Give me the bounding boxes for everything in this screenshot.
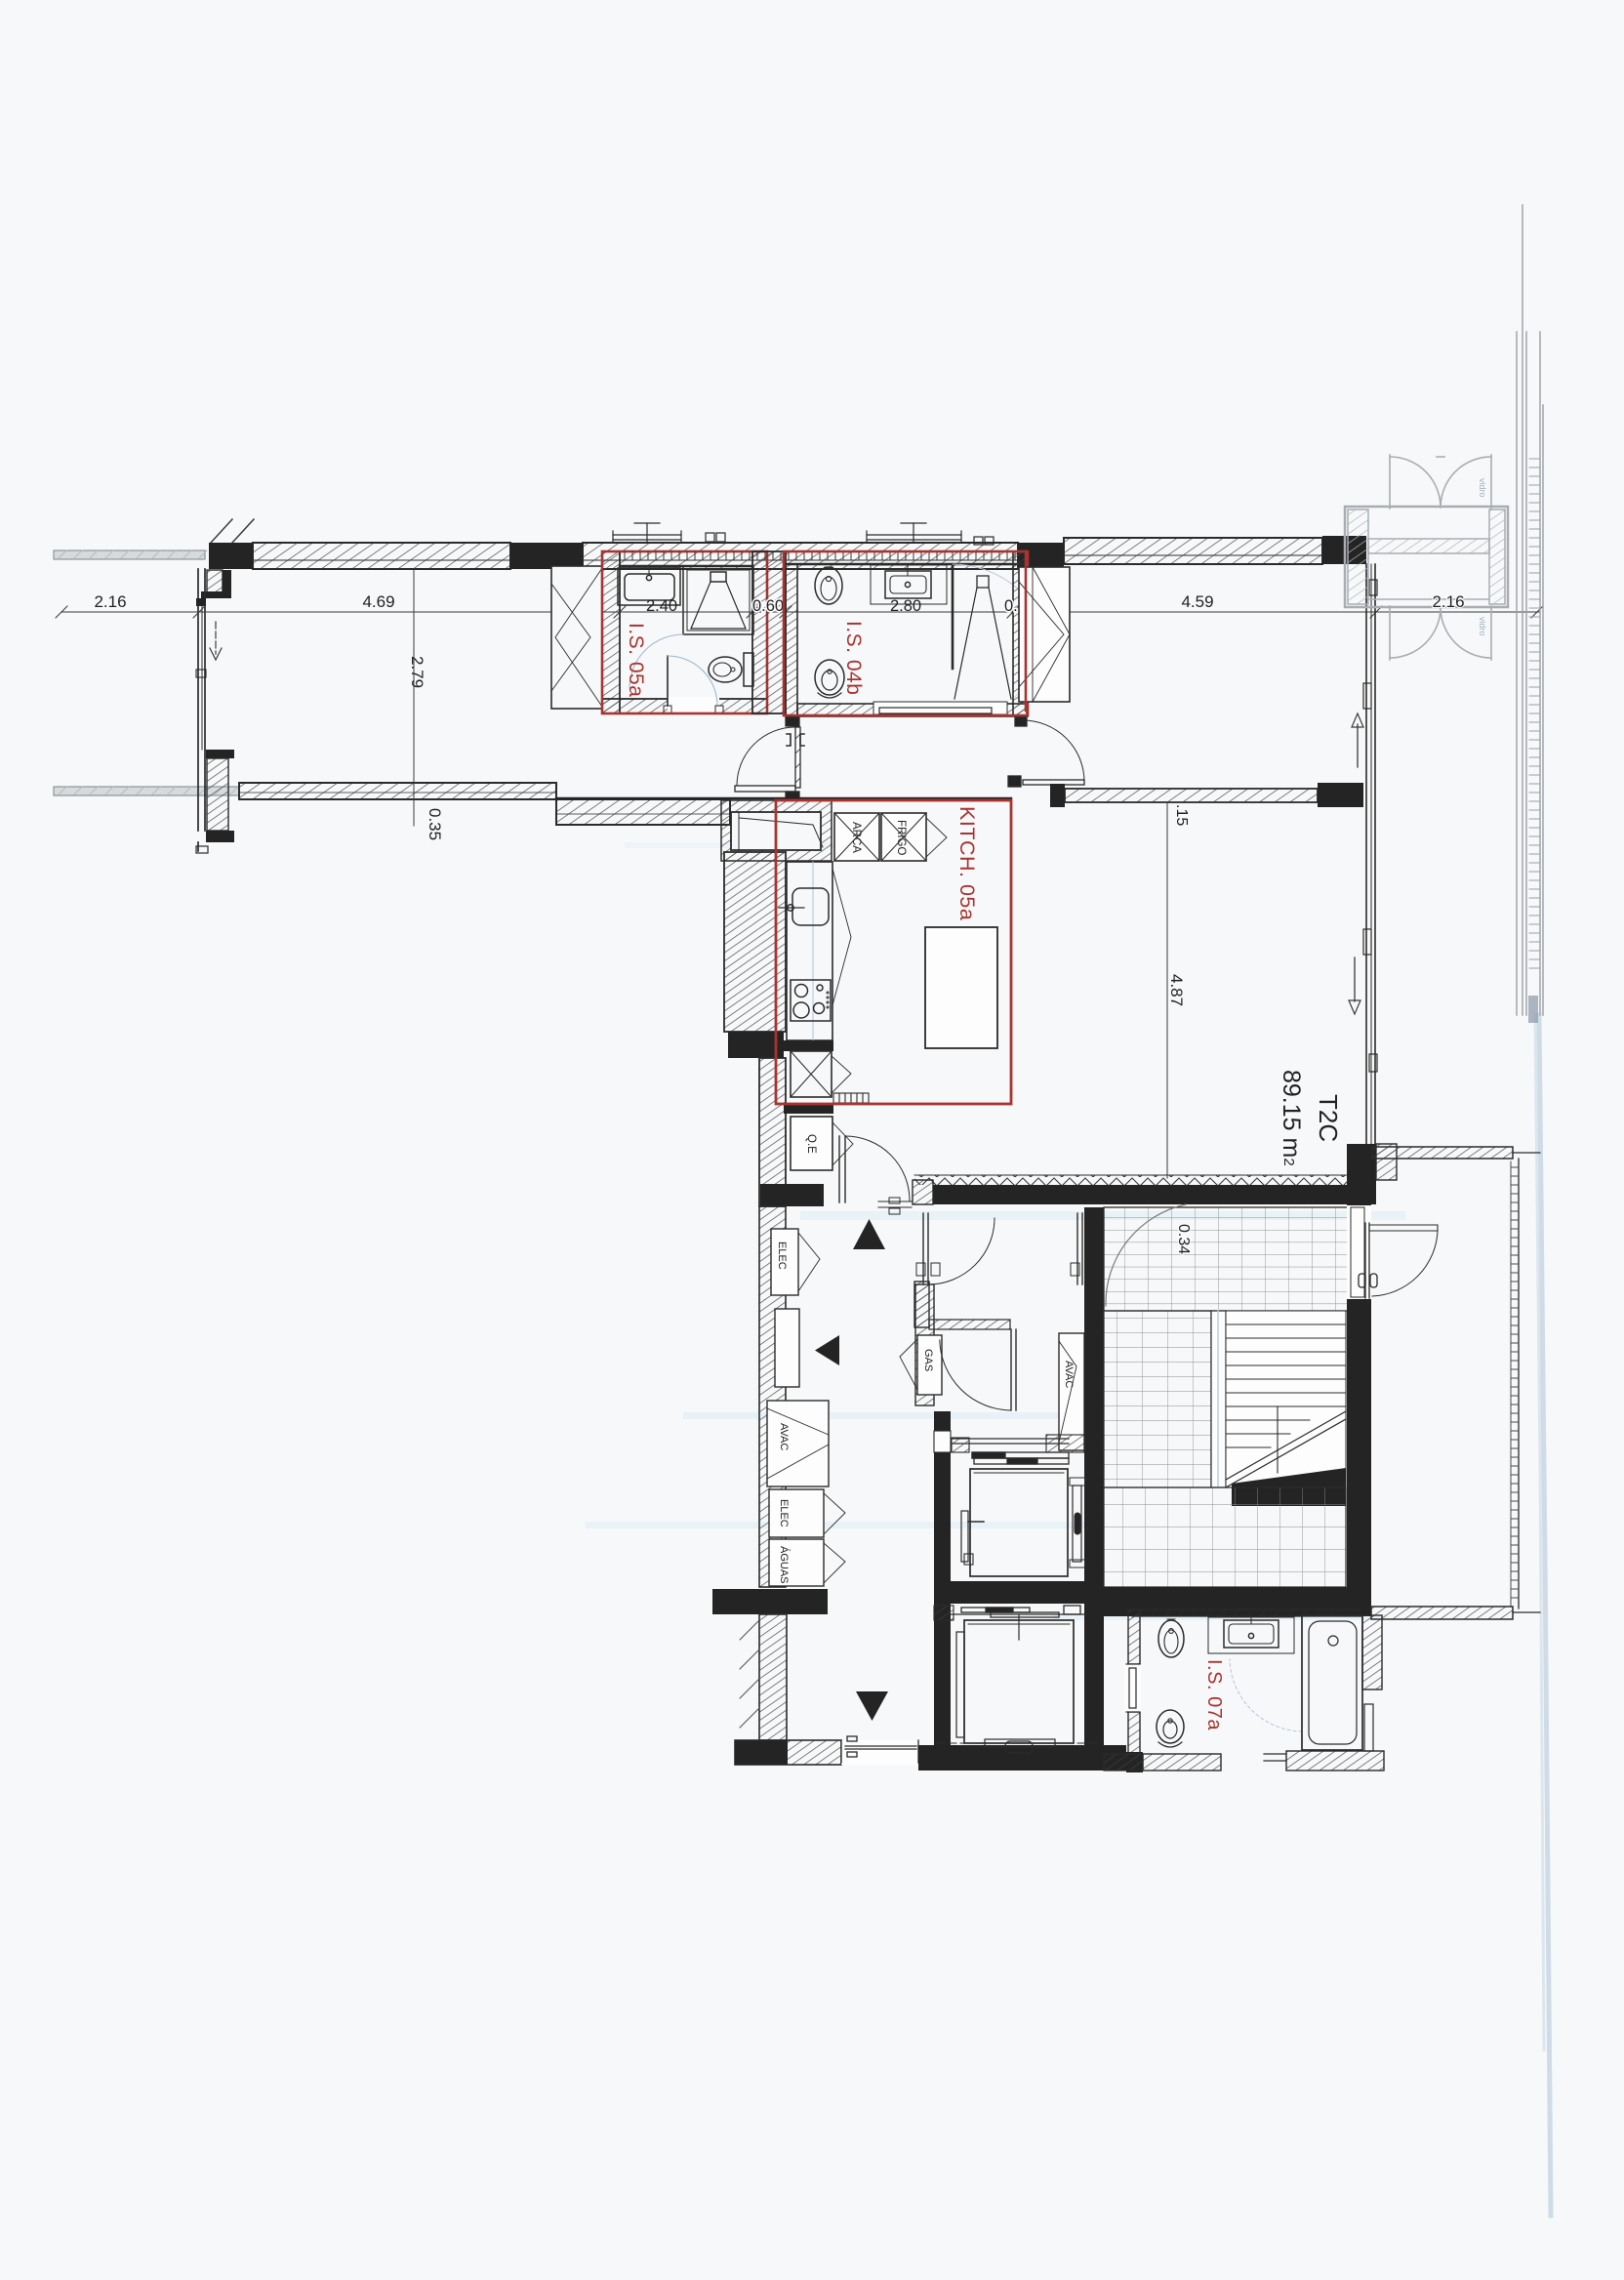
svg-text:0.60: 0.60 <box>752 597 784 615</box>
svg-text:ELEC: ELEC <box>776 1242 788 1270</box>
svg-text:KITCH. 05a: KITCH. 05a <box>955 806 979 920</box>
svg-text:2.80: 2.80 <box>890 597 921 615</box>
svg-text:2.40: 2.40 <box>646 597 677 615</box>
svg-text:ÁGUAS: ÁGUAS <box>778 1546 791 1584</box>
svg-text:ELEC: ELEC <box>778 1499 790 1527</box>
svg-text:AVAC: AVAC <box>778 1423 790 1450</box>
svg-text:.15: .15 <box>1173 804 1190 826</box>
svg-text:I.S. 05a: I.S. 05a <box>625 623 647 697</box>
svg-text:T2C: T2C <box>1314 1094 1343 1142</box>
svg-text:vidro: vidro <box>1478 478 1487 498</box>
svg-text:2.16: 2.16 <box>94 592 126 611</box>
svg-text:I.S. 07a: I.S. 07a <box>1203 1659 1225 1730</box>
svg-text:4.87: 4.87 <box>1167 974 1186 1006</box>
svg-text:2.79: 2.79 <box>408 656 426 688</box>
svg-text:vidro: vidro <box>1478 617 1487 636</box>
svg-text:ARCA: ARCA <box>850 822 862 853</box>
svg-text:FRIGO: FRIGO <box>895 820 907 855</box>
svg-text:AVAC: AVAC <box>1063 1361 1075 1388</box>
svg-text:4.59: 4.59 <box>1181 592 1213 611</box>
svg-text:4.69: 4.69 <box>362 592 394 611</box>
svg-text:0.35: 0.35 <box>426 808 444 840</box>
svg-text:2.16: 2.16 <box>1432 592 1464 611</box>
svg-text:89.15 m2: 89.15 m2 <box>1278 1070 1305 1166</box>
svg-text:Q.E: Q.E <box>805 1134 817 1154</box>
svg-text:GAS: GAS <box>922 1349 934 1371</box>
svg-text:I.S. 04b: I.S. 04b <box>842 621 865 695</box>
svg-text:0.34: 0.34 <box>1175 1224 1192 1254</box>
